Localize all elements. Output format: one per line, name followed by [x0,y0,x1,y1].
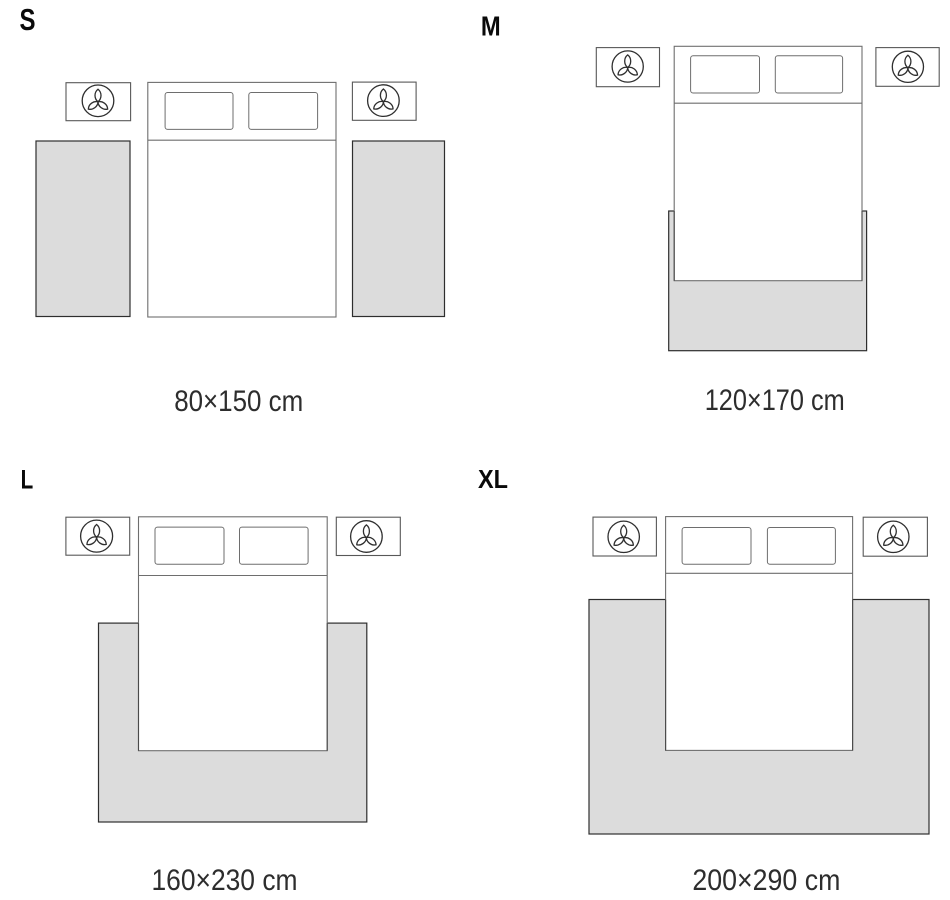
svg-text:XL: XL [478,464,508,494]
svg-text:120×170 cm: 120×170 cm [705,384,845,417]
svg-text:M: M [481,10,501,41]
svg-text:80×150 cm: 80×150 cm [174,385,303,418]
svg-text:160×230 cm: 160×230 cm [152,864,298,897]
svg-text:200×290 cm: 200×290 cm [692,864,840,897]
svg-text:S: S [20,2,36,37]
svg-text:L: L [21,464,34,494]
